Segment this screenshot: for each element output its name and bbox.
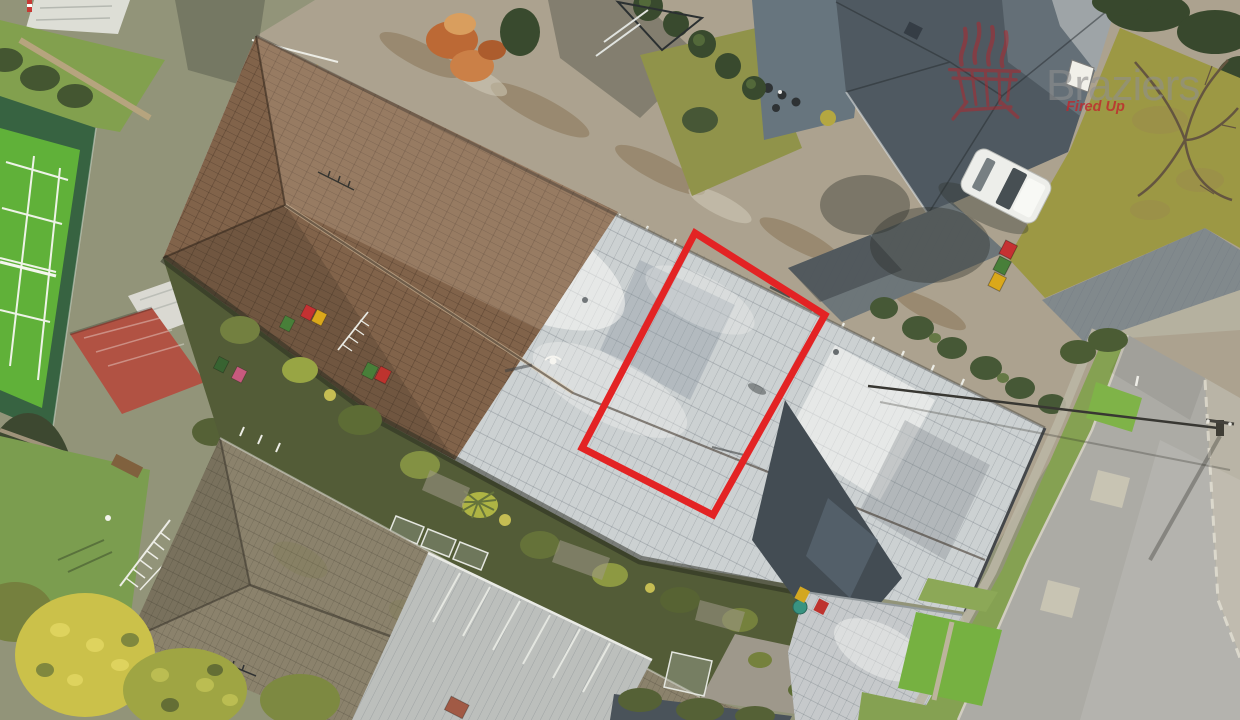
brand-tagline: Fired Up [1066, 99, 1125, 115]
aerial-photo: Braziers Fired Up [0, 0, 1240, 720]
aerial-photo-canvas: Braziers Fired Up [0, 0, 1240, 720]
